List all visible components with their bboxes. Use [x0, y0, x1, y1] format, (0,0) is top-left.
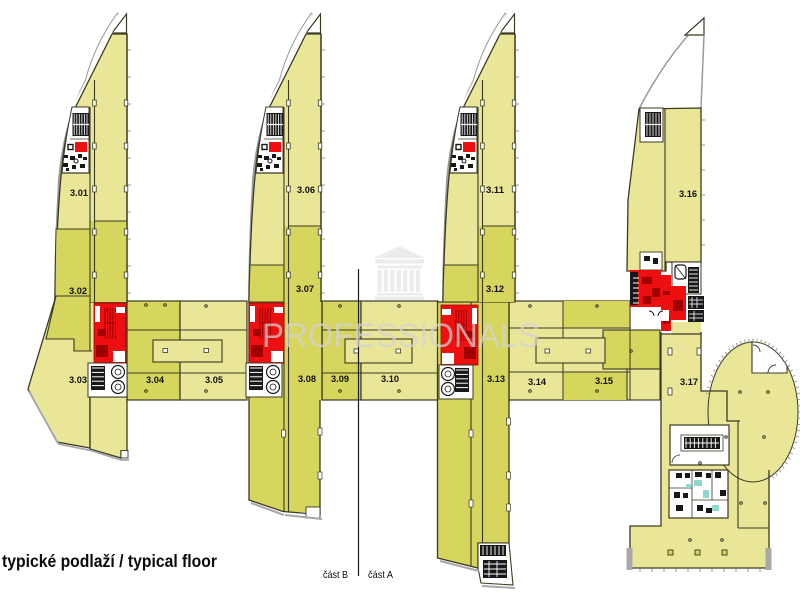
svg-text:3.06: 3.06 [297, 185, 315, 196]
svg-text:3.17: 3.17 [680, 377, 698, 388]
svg-text:PROFESSIONALS: PROFESSIONALS [262, 317, 540, 355]
svg-text:3.04: 3.04 [146, 375, 165, 386]
svg-text:3.14: 3.14 [528, 377, 547, 388]
svg-text:3.09: 3.09 [331, 374, 349, 385]
svg-text:část B: část B [323, 569, 348, 581]
svg-text:3.16: 3.16 [679, 189, 697, 200]
svg-text:3.13: 3.13 [487, 374, 505, 385]
svg-text:3.05: 3.05 [205, 375, 224, 386]
svg-text:3.15: 3.15 [595, 376, 614, 387]
svg-text:3.08: 3.08 [298, 374, 316, 385]
svg-text:3.11: 3.11 [486, 185, 505, 196]
svg-text:3.07: 3.07 [296, 284, 314, 295]
svg-text:3.01: 3.01 [70, 188, 89, 199]
svg-text:typické podlaží / typical floo: typické podlaží / typical floor [2, 551, 217, 571]
svg-text:3.10: 3.10 [381, 374, 399, 385]
svg-text:3.02: 3.02 [69, 286, 87, 297]
svg-text:3.12: 3.12 [486, 284, 504, 295]
svg-text:3.03: 3.03 [69, 375, 87, 386]
svg-text:část A: část A [368, 569, 393, 581]
